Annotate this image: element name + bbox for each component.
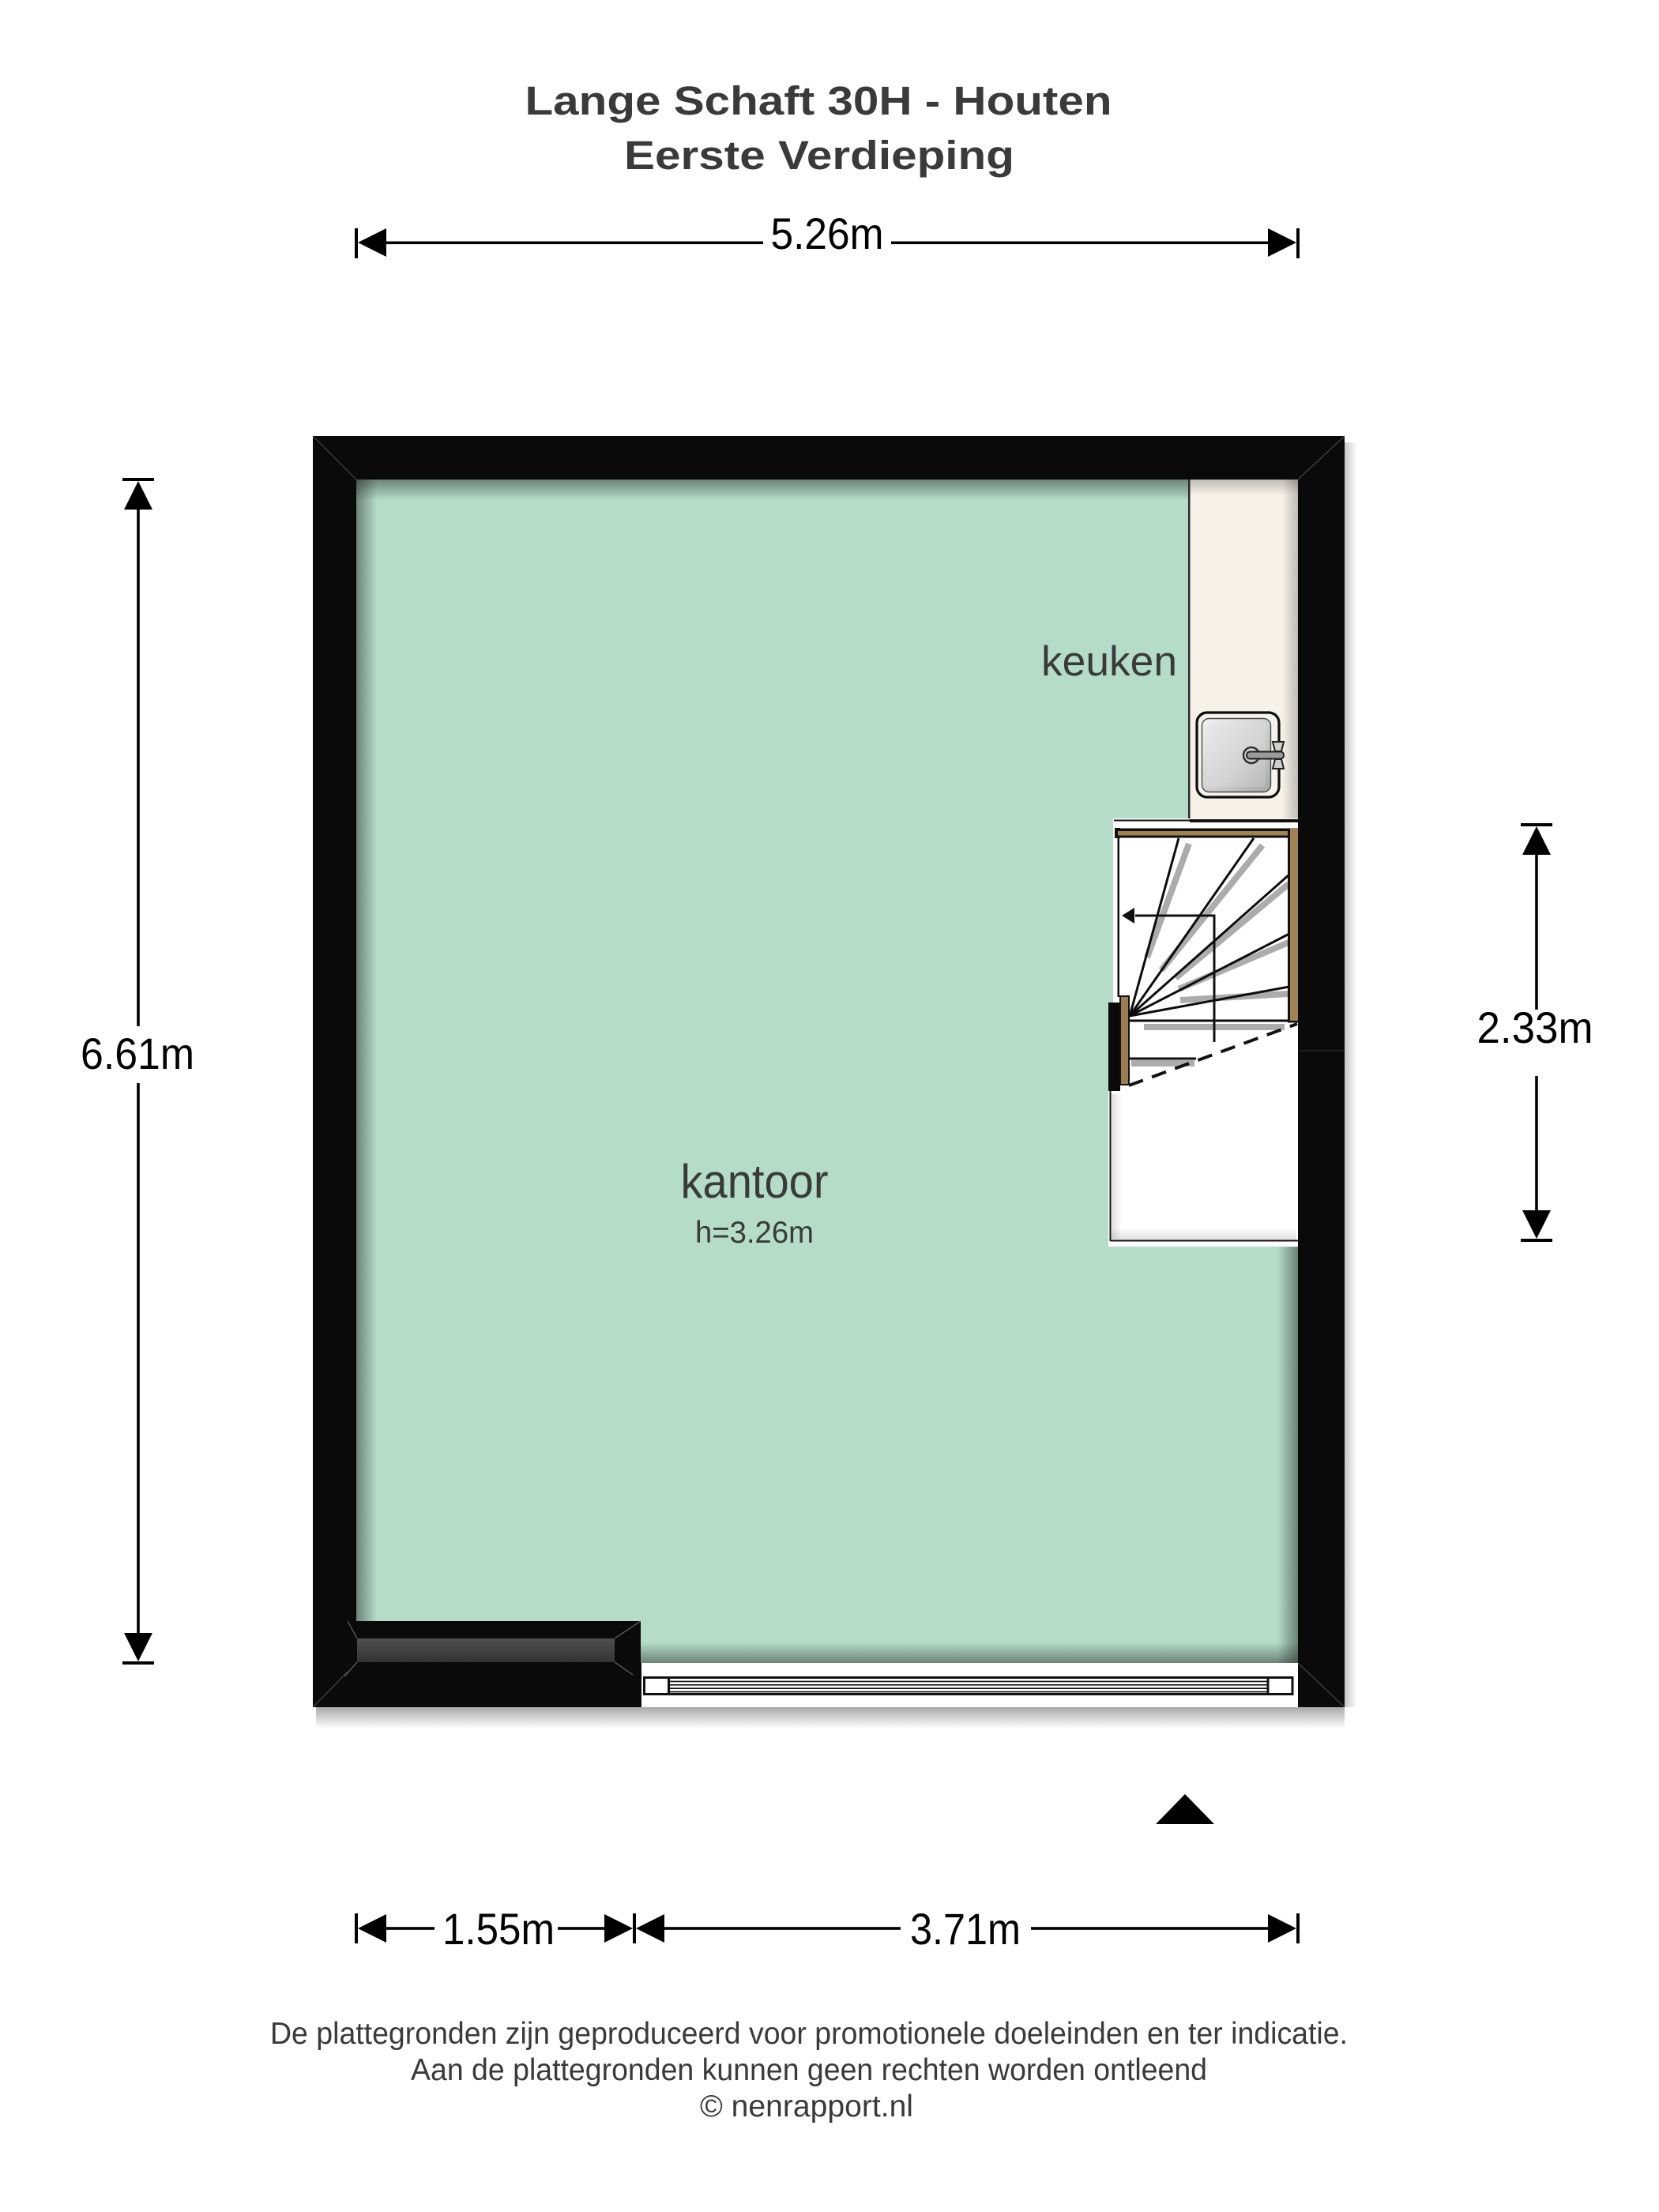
svg-text:6.61m: 6.61m [81,1029,194,1078]
svg-text:© nenrapport.nl: © nenrapport.nl [700,2090,913,2124]
svg-text:keuken: keuken [1041,638,1177,685]
svg-text:1.55m: 1.55m [442,1904,555,1954]
svg-text:Aan de plattegronden kunnen ge: Aan de plattegronden kunnen geen rechten… [411,2053,1207,2087]
svg-text:2.33m: 2.33m [1477,1003,1593,1052]
svg-text:3.71m: 3.71m [910,1904,1021,1954]
svg-text:5.26m: 5.26m [771,209,884,258]
svg-text:h=3.26m: h=3.26m [695,1216,814,1250]
svg-text:kantoor: kantoor [681,1155,829,1208]
svg-text:Lange Schaft 30H - Houten: Lange Schaft 30H - Houten [525,78,1112,123]
svg-text:De plattegronden zijn geproduc: De plattegronden zijn geproduceerd voor … [270,2017,1348,2051]
svg-text:Eerste Verdieping: Eerste Verdieping [624,133,1014,178]
